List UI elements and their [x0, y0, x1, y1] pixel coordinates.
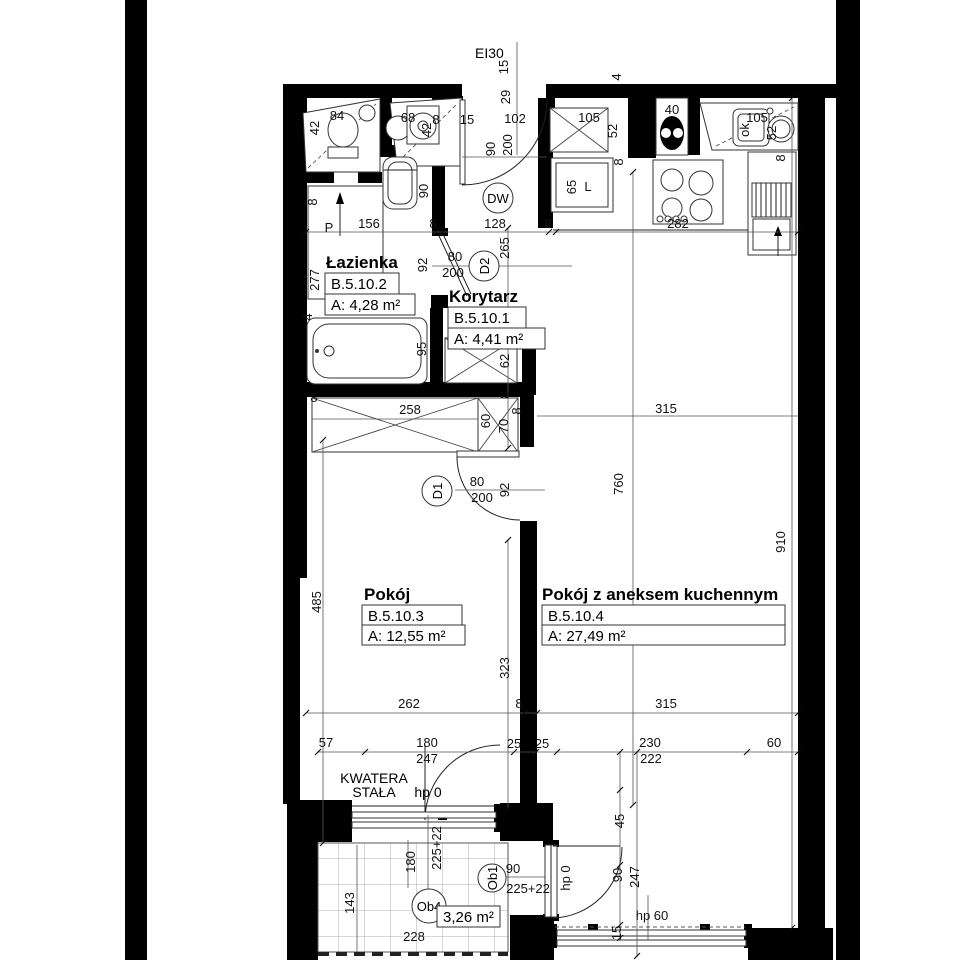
bathtub-icon: [307, 318, 427, 384]
dim-label: L: [584, 179, 591, 194]
dim-label: 15: [496, 60, 511, 74]
dim-label: 200: [471, 490, 493, 505]
room-name-korytarz: Korytarz: [449, 287, 518, 306]
dim-label: 180: [416, 735, 438, 750]
dim-label: 315: [655, 696, 677, 711]
dim-label: 8: [310, 390, 317, 405]
dim-label: 15: [460, 112, 474, 127]
dim-label: 29: [498, 90, 513, 104]
room-id-lazienka: B.5.10.2: [331, 276, 387, 293]
dim-label: 90: [610, 868, 625, 882]
room-id-pokoj-aneks: B.5.10.4: [548, 608, 604, 625]
dim-label: 200: [500, 134, 515, 156]
neighbor-wall-left: [125, 0, 147, 960]
window-note-sill: hp 0: [414, 784, 441, 800]
dim-label: 128: [484, 216, 506, 231]
dim-label: 8: [544, 216, 551, 231]
room-area-pokoj-aneks: A: 27,49 m²: [548, 628, 626, 645]
dim-label: 225+22: [429, 826, 444, 870]
room-door-leaf: [457, 451, 519, 457]
dim-label: 84: [330, 108, 344, 123]
dim-label: 315: [655, 401, 677, 416]
dim-label: 258: [399, 402, 421, 417]
room-area-korytarz: A: 4,41 m²: [454, 331, 523, 348]
dim-label: 265: [497, 237, 512, 259]
dim-label: 760: [611, 473, 626, 495]
dim-label: 92: [415, 258, 430, 272]
dim-label: 8: [515, 696, 522, 711]
dim-label: hp 60: [636, 908, 669, 923]
dim-label: 143: [342, 892, 357, 914]
window-note-line2: STAŁA: [352, 784, 396, 800]
room-name-pokoj: Pokój: [364, 585, 410, 604]
dim-label: 40: [665, 102, 679, 117]
fridge-icon: [551, 158, 613, 212]
balcony-area: 3,26 m²: [443, 909, 494, 926]
dim-label: 70: [496, 419, 511, 433]
room-name-pokoj-aneks: Pokój z aneksem kuchennym: [542, 585, 778, 604]
dim-label: 910: [773, 531, 788, 553]
dim-label: 200: [442, 265, 464, 280]
dim-label: 8: [305, 198, 320, 205]
floor-plan-page: DW D2 D1 Ob4 Ob1 Łazienka B.5.10.2 A: 4,…: [0, 0, 960, 960]
dim-label: 4: [609, 73, 624, 80]
room-id-korytarz: B.5.10.1: [454, 310, 510, 327]
room-area-lazienka: A: 4,28 m²: [331, 297, 400, 314]
dim-label: 282: [667, 216, 689, 231]
room-area-pokoj: A: 12,55 m²: [368, 628, 446, 645]
dim-label: 80: [470, 474, 484, 489]
dim-label: 15: [609, 926, 624, 940]
pokoj-window: [352, 806, 496, 828]
dim-label: 8: [509, 407, 524, 414]
dim-label: 8: [773, 154, 788, 161]
dim-label: 8: [497, 391, 512, 398]
dim-label: 45: [612, 814, 627, 828]
dim-label: 225+22: [506, 881, 550, 896]
dim-label: 90: [483, 142, 498, 156]
dim-label: 80: [448, 249, 462, 264]
door-tag-d2: D2: [477, 258, 492, 275]
dim-label: 277: [307, 269, 322, 291]
dim-label: 230: [639, 735, 661, 750]
stove-icon: [653, 160, 723, 224]
dim-label: 8: [611, 158, 626, 165]
dim-label: 222: [640, 751, 662, 766]
dim-label: 156: [358, 216, 380, 231]
dim-label: 485: [309, 591, 324, 613]
dim-label: 4: [300, 313, 315, 320]
dim-label: 62: [497, 354, 512, 368]
dim-label: 42: [307, 121, 322, 135]
dim-label: hp 0: [558, 865, 573, 890]
dim-label: 8: [429, 216, 436, 231]
room-id-pokoj: B.5.10.3: [368, 608, 424, 625]
floor-plan: DW D2 D1 Ob4 Ob1 Łazienka B.5.10.2 A: 4,…: [0, 0, 960, 960]
dim-label: ok: [737, 123, 752, 137]
dim-label: 247: [627, 866, 642, 888]
dim-label: 180: [403, 851, 418, 873]
dim-label: 52: [605, 124, 620, 138]
dim-label: 60: [767, 735, 781, 750]
dim-label: 90: [416, 184, 431, 198]
dim-label: 52: [764, 126, 779, 140]
door-tag-ob1: Ob1: [485, 866, 500, 891]
dim-label: 25: [535, 736, 549, 751]
dim-label: 105: [746, 110, 768, 125]
neighbor-wall-right: [836, 0, 860, 960]
dim-label: P: [325, 220, 334, 235]
dim-label: 57: [319, 735, 333, 750]
dim-label: 102: [504, 111, 526, 126]
dim-label: 65: [564, 180, 579, 194]
dim-label: 228: [403, 929, 425, 944]
door-tag-dw: DW: [487, 191, 509, 206]
dim-label: 25: [507, 736, 521, 751]
dim-label: 90: [506, 861, 520, 876]
dim-label: 60: [478, 414, 493, 428]
livingroom-window: [555, 927, 746, 946]
dim-label: 247: [416, 751, 438, 766]
washbasin-icon: [383, 157, 417, 209]
dim-label: 262: [398, 696, 420, 711]
dim-label: 8: [432, 112, 439, 127]
door-tag-d1: D1: [430, 483, 445, 500]
dim-label: 68: [401, 110, 415, 125]
dim-label: 95: [414, 342, 429, 356]
dim-label: 105: [578, 110, 600, 125]
dim-label: 323: [497, 657, 512, 679]
room-name-lazienka: Łazienka: [326, 253, 398, 272]
dim-label: 92: [497, 483, 512, 497]
fire-rating-label: EI30: [475, 45, 504, 61]
